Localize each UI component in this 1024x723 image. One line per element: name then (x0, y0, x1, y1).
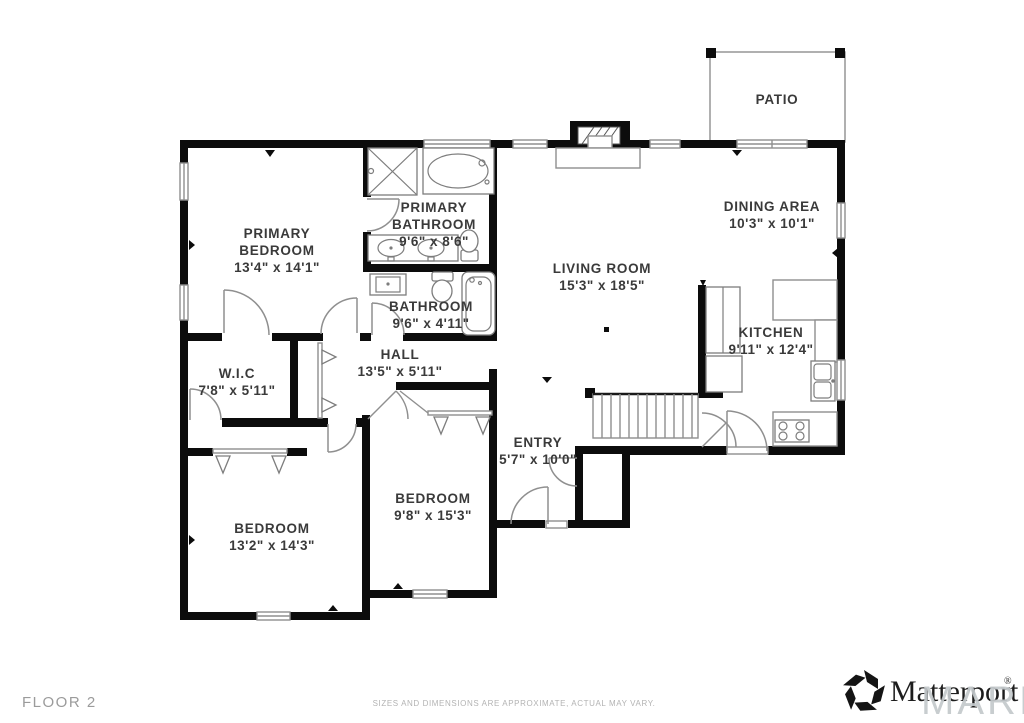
bathtub-icon (423, 148, 494, 194)
stairs-icon (585, 388, 698, 438)
room-name: LIVING ROOM (553, 261, 651, 276)
room-label-wic: W.I.C 7'8" x 5'11" (198, 366, 275, 398)
room-dimensions: 5'7" x 10'0" (499, 452, 577, 467)
floor-plan-canvas: PRIMARY BEDROOM 13'4" x 14'1" PRIMARY BA… (0, 0, 1024, 723)
room-label-dining-area: DINING AREA 10'3" x 10'1" (724, 199, 820, 231)
toilet-icon (432, 272, 453, 302)
room-label-patio: PATIO (756, 92, 799, 107)
closet-hangers-icon (318, 343, 336, 418)
closet-hangers-icon (400, 391, 492, 434)
room-dimensions: 10'3" x 10'1" (729, 216, 815, 231)
window (424, 140, 490, 148)
room-name: KITCHEN (739, 325, 804, 340)
room-dimensions: 13'5" x 5'11" (357, 364, 442, 379)
patio-slider-door (737, 140, 807, 148)
room-label-bedroom-middle: BEDROOM 9'8" x 15'3" (394, 491, 472, 523)
room-name: BEDROOM (395, 491, 470, 506)
shower-icon (368, 148, 417, 195)
window (837, 203, 845, 238)
pantry-icon (706, 287, 742, 392)
room-dimensions: 9'11" x 12'4" (728, 342, 813, 357)
room-label-hall: HALL 13'5" x 5'11" (357, 347, 442, 379)
room-name: BEDROOM (234, 521, 309, 536)
window (180, 163, 188, 200)
door-swing (328, 424, 356, 452)
back-door-threshold (727, 447, 768, 454)
door-swing (727, 411, 767, 451)
kitchen-sink-icon (811, 361, 835, 401)
room-name: PATIO (756, 92, 799, 107)
room-name: PRIMARY (401, 200, 468, 215)
window (413, 590, 447, 598)
window (513, 140, 547, 148)
room-name: BATHROOM (392, 217, 476, 232)
floor-plan-page: PRIMARY BEDROOM 13'4" x 14'1" PRIMARY BA… (0, 0, 1024, 723)
window (650, 140, 680, 148)
front-door-threshold (546, 521, 567, 528)
maris-watermark: MARIS (921, 679, 1024, 723)
room-label-primary-bedroom: PRIMARY BEDROOM 13'4" x 14'1" (234, 226, 320, 275)
window (180, 285, 188, 320)
door-swing (224, 290, 269, 335)
room-label-living-room: LIVING ROOM 15'3" x 18'5" (553, 261, 651, 293)
room-name: W.I.C (219, 366, 256, 381)
room-dimensions: 9'6" x 8'6" (399, 234, 469, 249)
room-dimensions: 13'2" x 14'3" (229, 538, 315, 553)
window (257, 612, 290, 620)
door-swing (511, 487, 548, 524)
room-label-primary-bathroom: PRIMARY BATHROOM 9'6" x 8'6" (392, 200, 476, 249)
door-swing (321, 298, 357, 334)
room-dimensions: 9'6" x 4'11" (392, 316, 469, 331)
room-label-bathroom: BATHROOM 9'6" x 4'11" (389, 299, 473, 331)
window (837, 360, 845, 400)
room-dimensions: 13'4" x 14'1" (234, 260, 320, 275)
room-name: PRIMARY (244, 226, 311, 241)
room-name: BEDROOM (239, 243, 314, 258)
door-swing (368, 391, 408, 419)
room-dimensions: 7'8" x 5'11" (198, 383, 275, 398)
room-name: ENTRY (514, 435, 563, 450)
matterport-logo-icon (840, 670, 890, 718)
disclaimer-text: SIZES AND DIMENSIONS ARE APPROXIMATE, AC… (373, 699, 656, 708)
room-name: HALL (381, 347, 420, 362)
door-swing (702, 413, 736, 447)
stove-icon (775, 420, 809, 442)
floor-label: FLOOR 2 (22, 694, 97, 711)
sink-vanity-icon (370, 274, 406, 295)
room-name: DINING AREA (724, 199, 820, 214)
room-label-kitchen: KITCHEN 9'11" x 12'4" (728, 325, 813, 357)
room-dimensions: 9'8" x 15'3" (394, 508, 472, 523)
room-dimensions: 15'3" x 18'5" (559, 278, 645, 293)
room-name: BATHROOM (389, 299, 473, 314)
closet-hangers-icon (213, 449, 287, 473)
room-label-entry: ENTRY 5'7" x 10'0" (499, 435, 577, 467)
room-label-bedroom-left: BEDROOM 13'2" x 14'3" (229, 521, 315, 553)
